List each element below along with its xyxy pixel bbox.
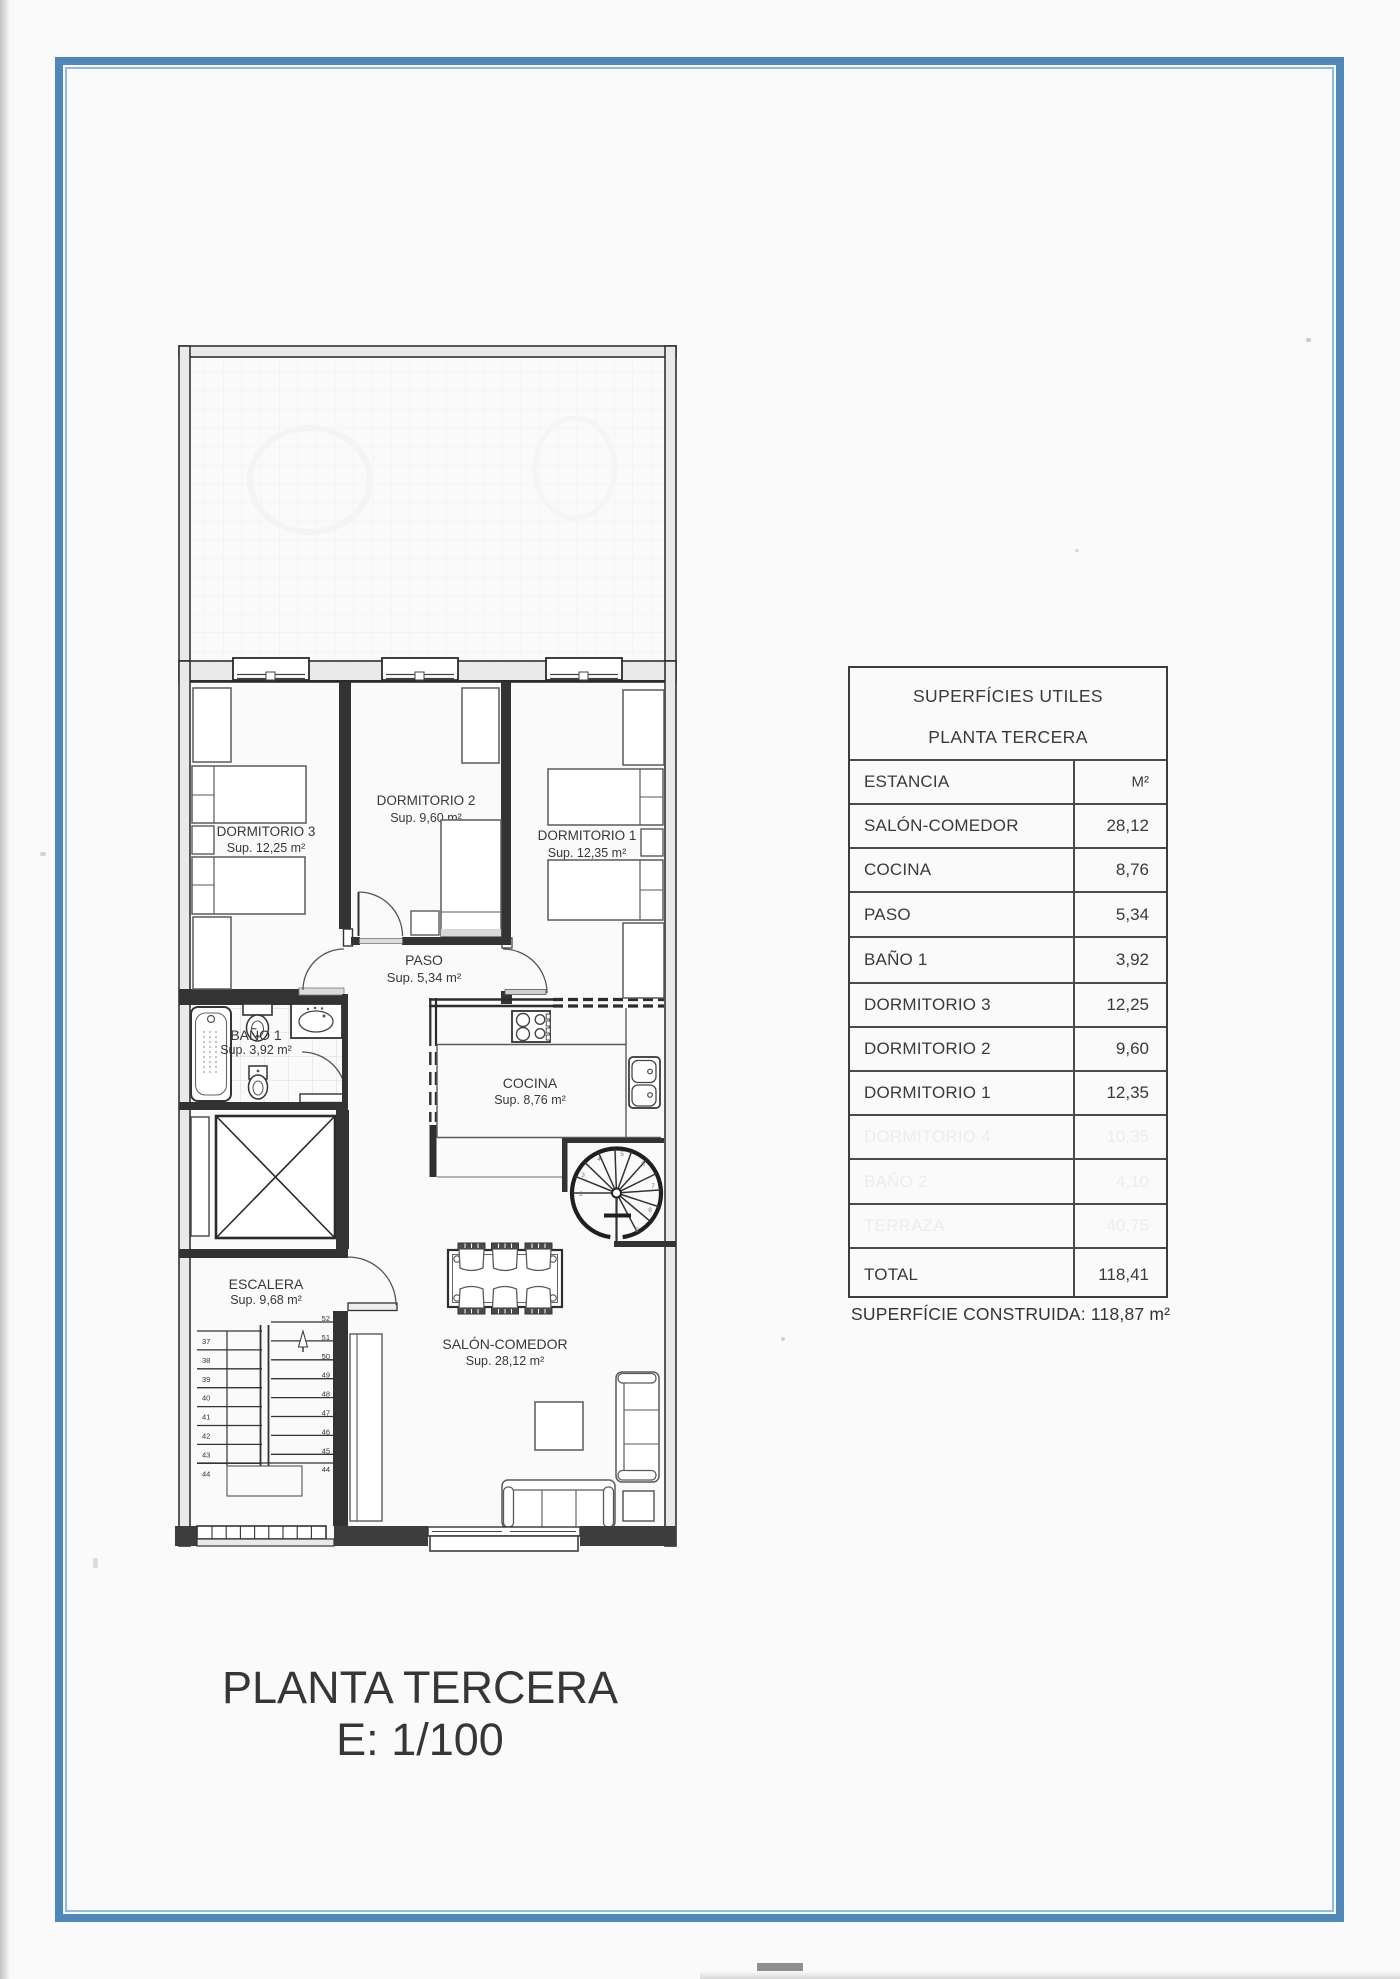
svg-text:51: 51 [322, 1333, 330, 1342]
svg-text:ESCALERA: ESCALERA [229, 1276, 304, 1292]
svg-text:Sup. 5,34 m²: Sup. 5,34 m² [387, 970, 462, 985]
svg-text:40: 40 [202, 1394, 210, 1403]
svg-text:37: 37 [202, 1337, 210, 1346]
svg-text:9: 9 [635, 1227, 639, 1234]
svg-text:49: 49 [322, 1371, 330, 1380]
svg-text:50: 50 [322, 1352, 330, 1361]
svg-text:3: 3 [581, 1172, 585, 1179]
svg-text:Sup. 12,25 m²: Sup. 12,25 m² [227, 841, 306, 855]
svg-text:47: 47 [322, 1409, 330, 1418]
svg-text:7: 7 [651, 1183, 655, 1190]
svg-text:52: 52 [322, 1314, 330, 1323]
svg-text:4: 4 [597, 1156, 601, 1163]
svg-text:COCINA: COCINA [503, 1075, 558, 1091]
svg-text:PASO: PASO [405, 952, 443, 968]
svg-text:46: 46 [322, 1427, 330, 1436]
svg-text:SALÓN-COMEDOR: SALÓN-COMEDOR [442, 1336, 567, 1352]
svg-text:DORMITORIO 1: DORMITORIO 1 [538, 828, 637, 843]
svg-text:5: 5 [620, 1151, 624, 1158]
svg-text:Sup. 12,35 m²: Sup. 12,35 m² [548, 846, 627, 860]
svg-text:41: 41 [202, 1413, 210, 1422]
svg-text:Sup. 28,12 m²: Sup. 28,12 m² [466, 1354, 545, 1368]
svg-text:38: 38 [202, 1356, 210, 1365]
svg-text:43: 43 [202, 1450, 210, 1459]
svg-text:6: 6 [641, 1161, 645, 1168]
svg-text:8: 8 [648, 1207, 652, 1214]
svg-text:Sup. 3,92 m²: Sup. 3,92 m² [220, 1043, 292, 1057]
svg-text:Sup. 9,68 m²: Sup. 9,68 m² [230, 1293, 302, 1307]
svg-text:Sup. 8,76 m²: Sup. 8,76 m² [494, 1093, 566, 1107]
svg-text:2: 2 [579, 1191, 583, 1198]
svg-text:DORMITORIO 3: DORMITORIO 3 [217, 824, 316, 839]
svg-text:44: 44 [322, 1465, 330, 1474]
svg-text:44: 44 [202, 1469, 210, 1478]
svg-text:48: 48 [322, 1390, 330, 1399]
svg-text:39: 39 [202, 1375, 210, 1384]
svg-text:DORMITORIO 2: DORMITORIO 2 [377, 793, 476, 808]
svg-text:42: 42 [202, 1432, 210, 1441]
svg-text:BAÑO 1: BAÑO 1 [230, 1027, 282, 1043]
svg-text:45: 45 [322, 1446, 330, 1455]
